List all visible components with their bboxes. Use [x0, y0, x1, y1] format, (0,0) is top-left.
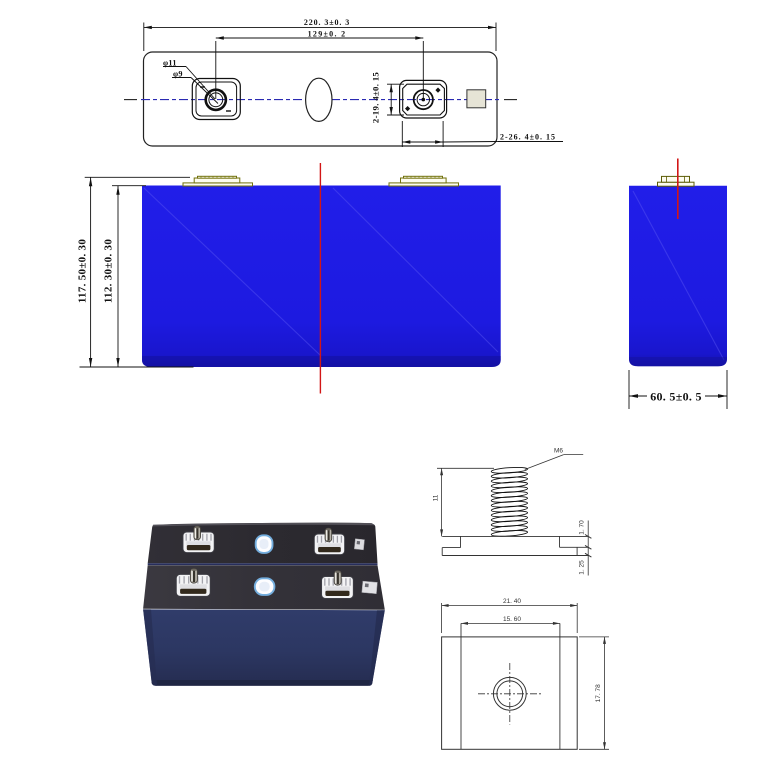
- svg-text:M6: M6: [554, 448, 563, 455]
- svg-text:11: 11: [433, 494, 440, 501]
- svg-text:15. 60: 15. 60: [503, 616, 521, 623]
- svg-text:1. 70: 1. 70: [579, 520, 586, 535]
- svg-text:220. 3±0. 3: 220. 3±0. 3: [304, 18, 350, 27]
- svg-text:129±0. 2: 129±0. 2: [308, 29, 347, 38]
- svg-text:2-19. 4±0. 15: 2-19. 4±0. 15: [371, 72, 381, 124]
- svg-text:2-26. 4±0. 15: 2-26. 4±0. 15: [500, 133, 556, 142]
- svg-text:φ9: φ9: [173, 70, 183, 79]
- svg-text:1. 25: 1. 25: [579, 560, 586, 575]
- svg-text:117. 50±0. 30: 117. 50±0. 30: [77, 239, 89, 304]
- svg-text:112. 30±0. 30: 112. 30±0. 30: [103, 239, 115, 304]
- svg-text:17. 78: 17. 78: [595, 684, 602, 702]
- svg-text:60. 5±0. 5: 60. 5±0. 5: [650, 390, 702, 404]
- svg-text:21. 40: 21. 40: [503, 598, 521, 605]
- svg-text:φ11: φ11: [163, 59, 177, 68]
